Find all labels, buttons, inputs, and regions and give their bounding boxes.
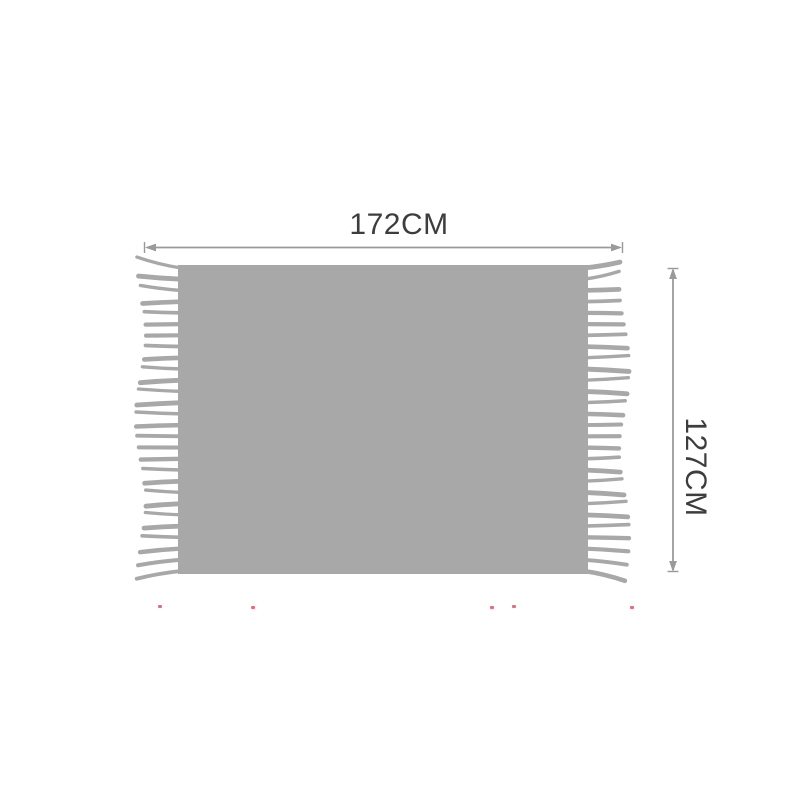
blanket-fringe-right xyxy=(584,262,629,581)
blanket-figure xyxy=(0,0,800,800)
blanket-body xyxy=(178,265,588,574)
blanket-fringe-left xyxy=(136,257,181,579)
red-speck xyxy=(251,606,255,609)
red-speck xyxy=(512,605,516,608)
height-dimension-label: 127CM xyxy=(680,417,710,516)
product-dimension-diagram: 172CM 127CM xyxy=(0,0,800,800)
width-dimension-label: 172CM xyxy=(349,210,448,240)
height-dimension-arrow xyxy=(668,268,679,572)
red-speck xyxy=(630,606,634,609)
red-speck xyxy=(490,606,494,609)
width-dimension-arrow xyxy=(145,242,623,253)
red-speck xyxy=(158,605,162,608)
